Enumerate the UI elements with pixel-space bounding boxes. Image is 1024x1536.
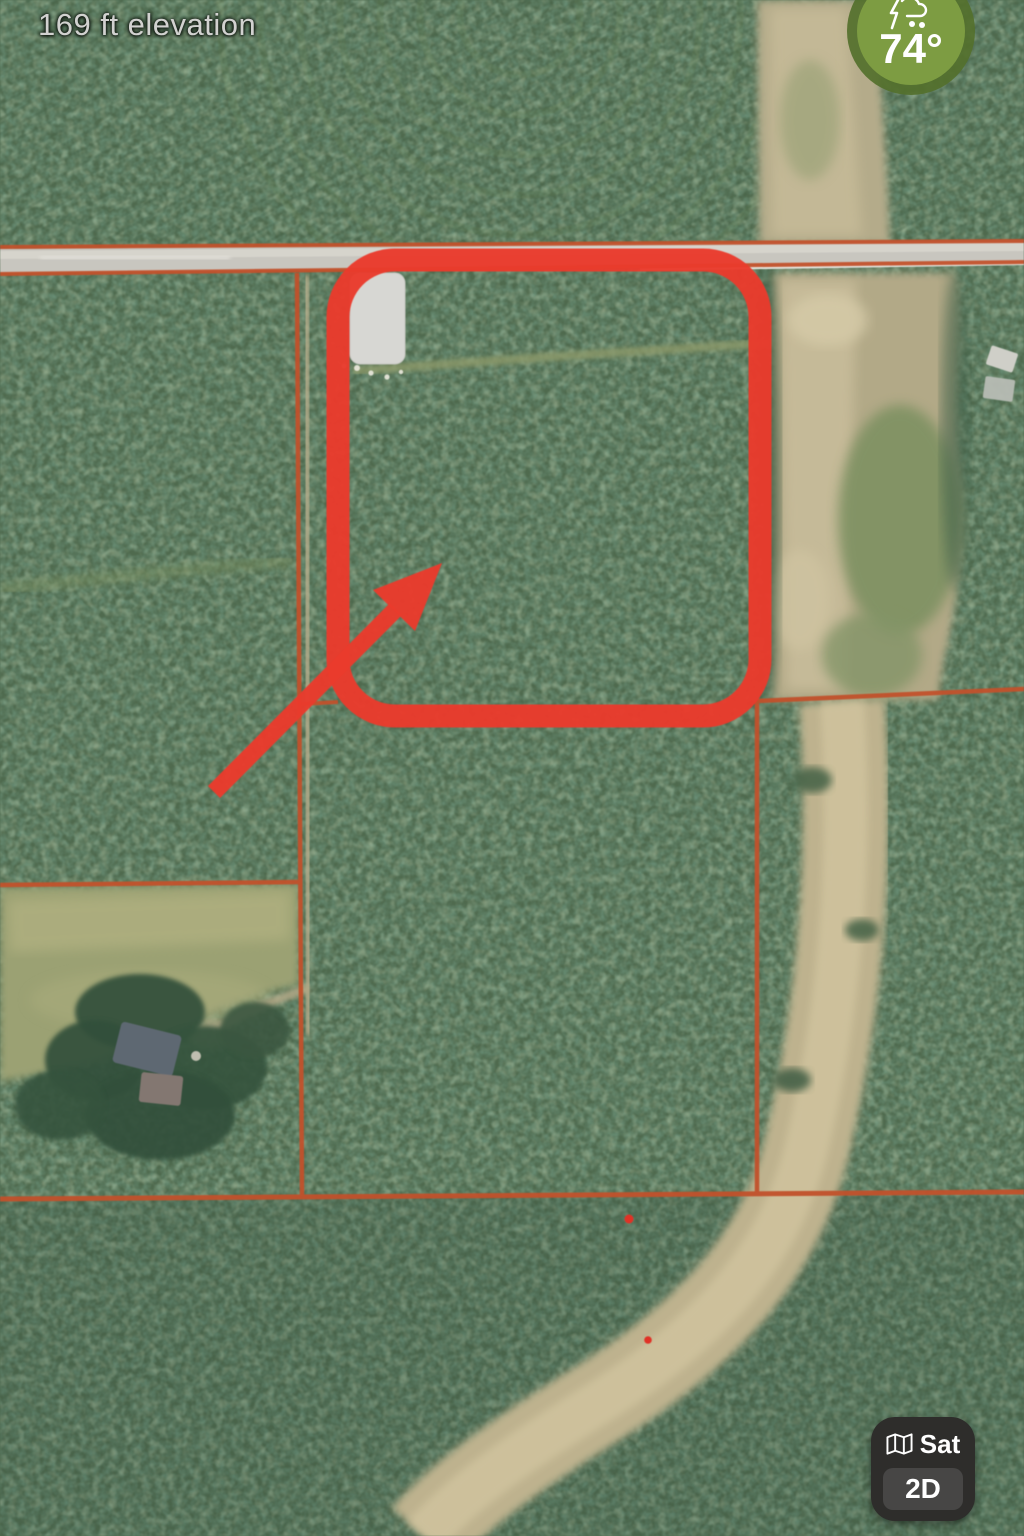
satellite-imagery (0, 0, 1024, 1536)
satellite-layer-toggle[interactable]: Sat (871, 1429, 975, 1459)
view-mode-label: 2D (905, 1475, 941, 1503)
satellite-map-view[interactable]: 169 ft elevation 74° Sat 2D (0, 0, 1024, 1536)
view-mode-toggle[interactable]: 2D (883, 1468, 963, 1510)
elevation-label: 169 ft elevation (38, 7, 256, 43)
folded-map-icon (886, 1433, 913, 1455)
temperature-value: 74° (879, 28, 943, 70)
house-roof (139, 1072, 184, 1106)
marker-dot (625, 1215, 634, 1224)
satellite-layer-label: Sat (920, 1431, 960, 1457)
marker-dot (644, 1336, 652, 1344)
boundary-west-horizontal (0, 882, 302, 885)
map-layer-control[interactable]: Sat 2D (871, 1417, 975, 1521)
